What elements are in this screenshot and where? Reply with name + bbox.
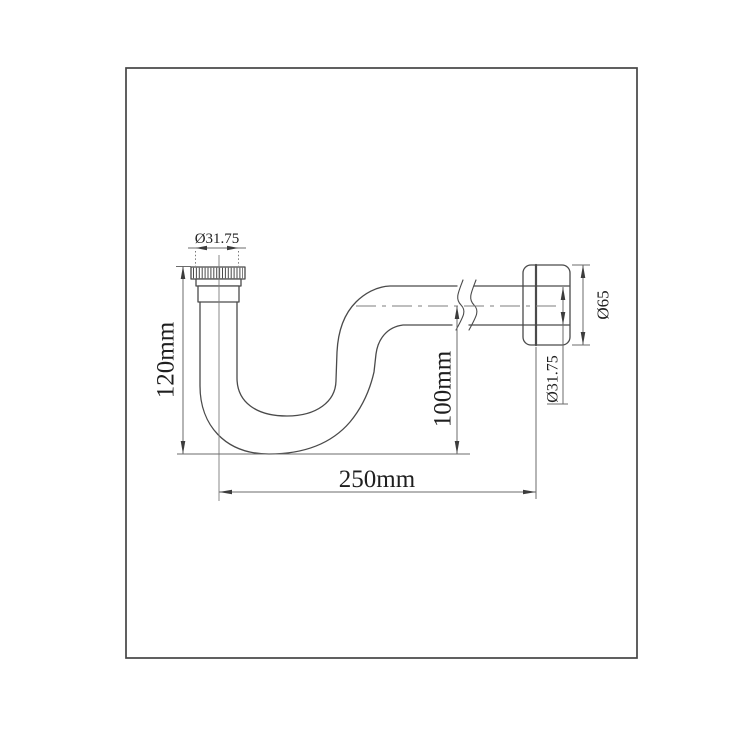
label-trap-height: 120mm [153,321,180,398]
label-overall-length: 250mm [339,466,416,493]
label-inlet-diameter: Ø31.75 [195,231,240,247]
trap-outer-contour [200,302,452,454]
arrow-outlet-height-bottom [455,441,460,454]
pipe-break-line-right [469,280,477,330]
slip-nut-washer [196,279,241,286]
inlet-collar [198,286,239,302]
arrow-flange-dia-bottom [581,332,586,345]
arrow-outlet-dia-top [561,287,566,300]
label-outlet-pipe-diameter: Ø31.75 [545,355,562,403]
centerlines-group [219,255,557,501]
arrow-outlet-height-top [455,306,460,319]
arrow-length-left [219,490,232,495]
arrow-length-right [523,490,536,495]
trap-outline-group [191,265,570,454]
technical-drawing: Ø31.75 120mm 100mm 250mm Ø65 Ø31.75 [0,0,750,750]
arrow-flange-dia-top [581,265,586,278]
arrow-outlet-dia-bottom [561,312,566,325]
arrow-height-bottom [181,441,186,454]
drawing-sheet: Ø31.75 120mm 100mm 250mm Ø65 Ø31.75 [0,0,750,750]
arrow-height-top [181,266,186,279]
label-flange-diameter: Ø65 [594,290,613,319]
trap-inner-contour [237,286,457,416]
label-outlet-center-height: 100mm [430,350,457,427]
